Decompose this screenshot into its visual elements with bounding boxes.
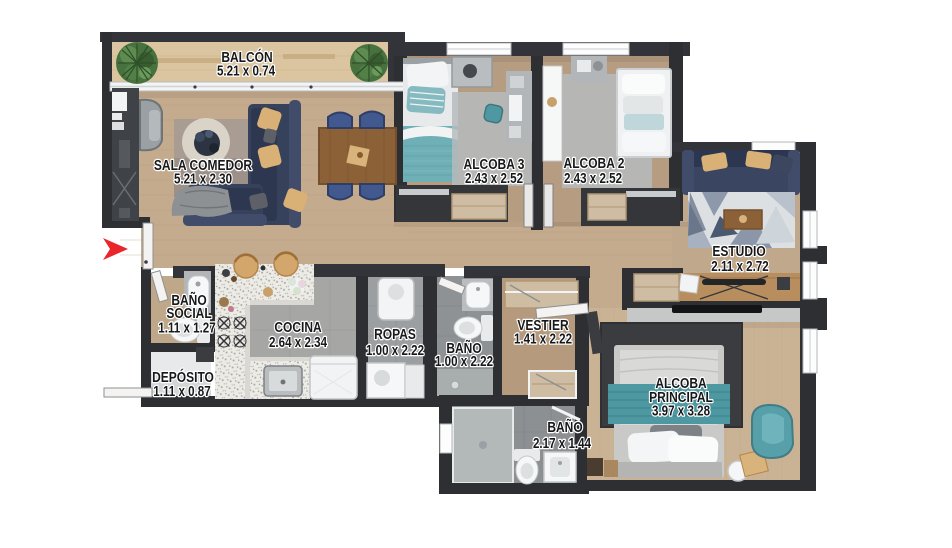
svg-text:1.41 x 2.22: 1.41 x 2.22 [514, 330, 572, 347]
svg-text:2.64 x 2.34: 2.64 x 2.34 [269, 334, 328, 351]
svg-text:2.43 x 2.52: 2.43 x 2.52 [465, 170, 523, 187]
svg-text:5.21 x 2.30: 5.21 x 2.30 [174, 170, 232, 187]
svg-text:1.11 x 1.27: 1.11 x 1.27 [158, 319, 215, 336]
svg-text:2.43 x 2.52: 2.43 x 2.52 [564, 170, 622, 187]
svg-text:1.11 x 0.87: 1.11 x 0.87 [153, 383, 210, 400]
svg-text:5.21 x 0.74: 5.21 x 0.74 [217, 62, 276, 79]
svg-text:BAÑO: BAÑO [547, 419, 582, 436]
svg-text:3.97 x 3.28: 3.97 x 3.28 [652, 402, 710, 419]
svg-text:1.00 x 2.22: 1.00 x 2.22 [366, 342, 424, 359]
svg-text:ROPAS: ROPAS [374, 326, 416, 343]
svg-text:1.00 x 2.22: 1.00 x 2.22 [435, 353, 493, 370]
svg-text:2.17 x 1.44: 2.17 x 1.44 [533, 435, 592, 452]
svg-text:2.11 x 2.72: 2.11 x 2.72 [711, 258, 768, 275]
